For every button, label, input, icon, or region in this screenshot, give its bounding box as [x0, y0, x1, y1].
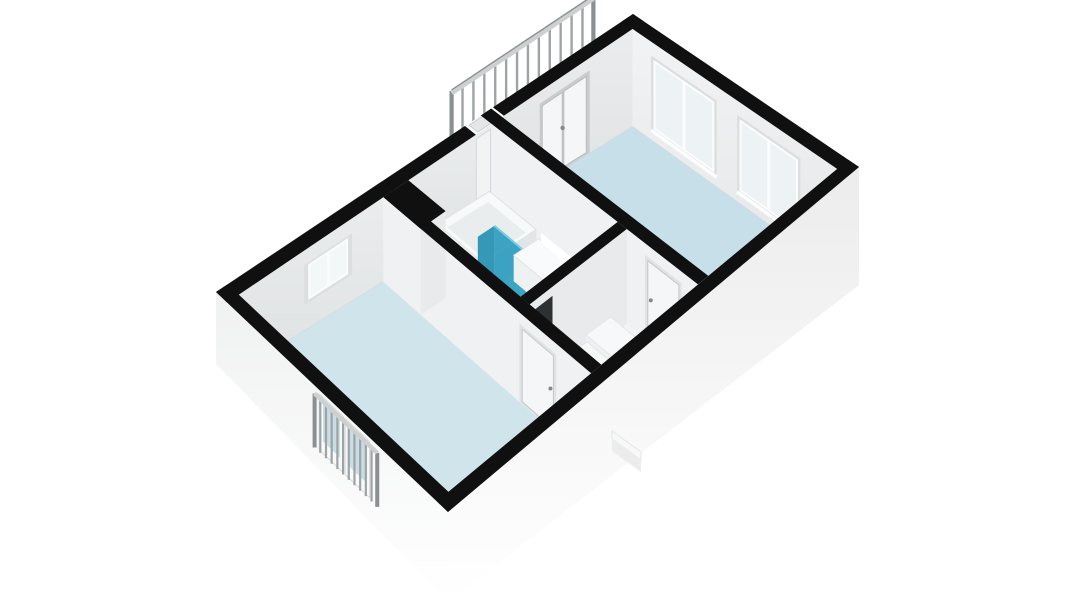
- door-handle: [548, 387, 552, 391]
- floorplan-viewport: [0, 0, 1080, 608]
- door-handle: [560, 126, 564, 130]
- french-door-north-leaf: [564, 76, 587, 166]
- door-handle: [649, 298, 653, 302]
- floorplan-3d-render: [0, 0, 1080, 608]
